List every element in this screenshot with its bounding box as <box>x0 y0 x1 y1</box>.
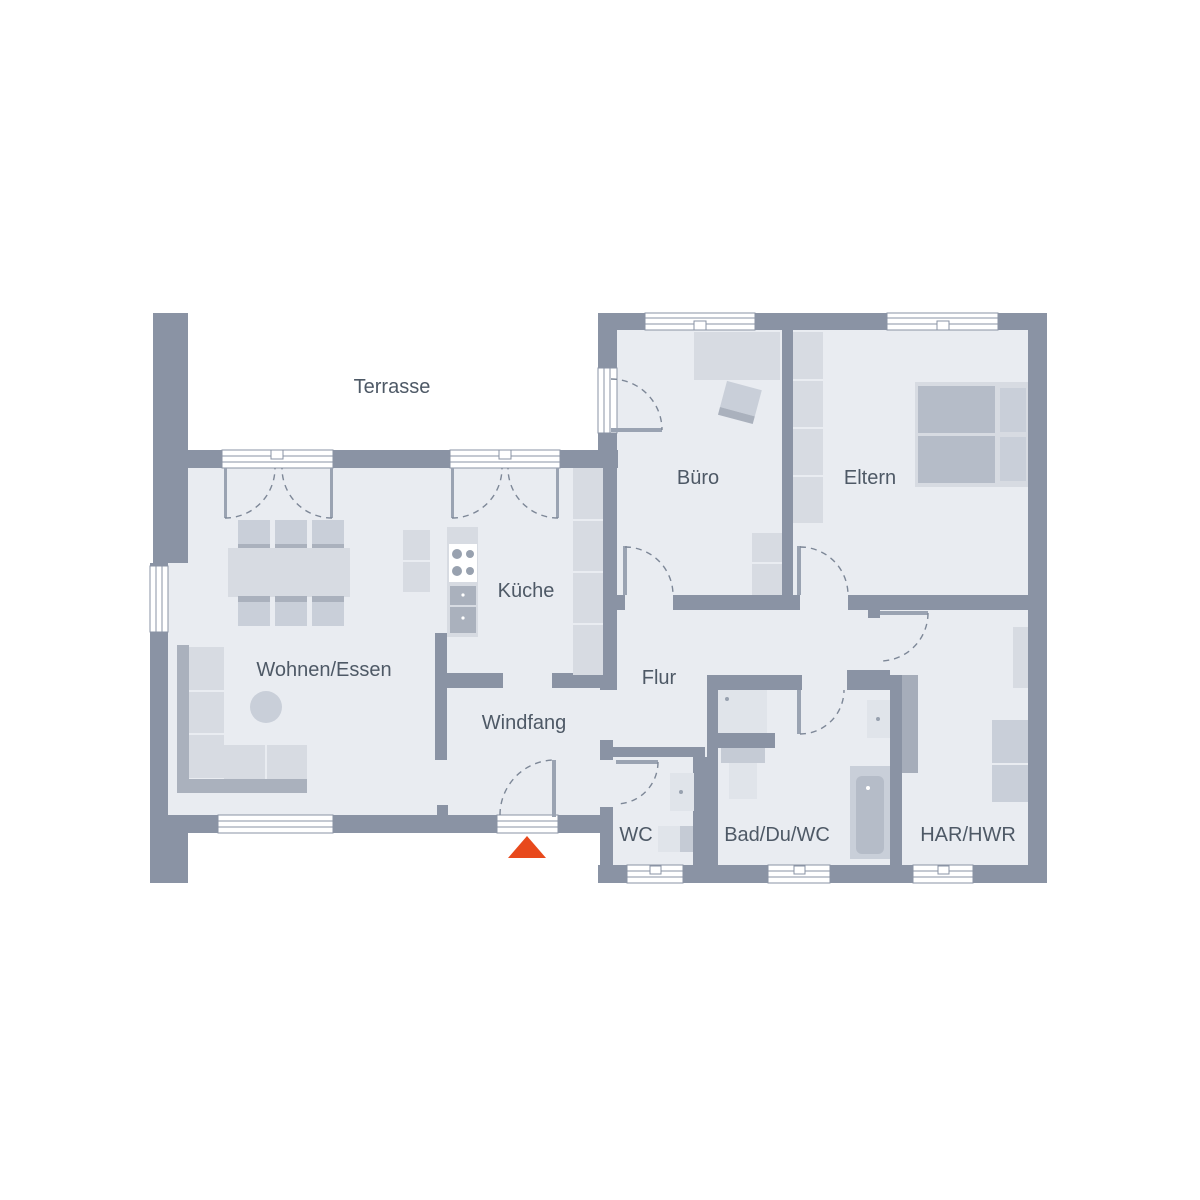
window-handle-icon <box>650 866 661 874</box>
mattress <box>918 386 995 433</box>
double-bed <box>915 382 1028 487</box>
wc-west-wall-lower <box>600 807 613 865</box>
dining-chair <box>275 520 307 544</box>
wc-west-wall-upper <box>600 740 613 760</box>
kitchen-south-wall-a <box>447 673 503 688</box>
utility-cabinet <box>1013 627 1028 688</box>
window-handle-icon <box>499 450 511 459</box>
dryer-icon <box>992 765 1028 802</box>
bathtub-icon <box>850 766 890 859</box>
hall-wall-stub-a <box>617 595 625 610</box>
entrance-marker-icon <box>508 836 546 858</box>
vestibule-living-wall <box>435 633 447 760</box>
kitchen-south-wall-b <box>552 673 605 688</box>
room-label-bad-du-wc: Bad/Du/WC <box>724 824 830 846</box>
bedroom-north-window <box>887 313 998 330</box>
wc-south-window <box>627 865 683 883</box>
coffee-table <box>250 691 282 723</box>
door-leaf <box>556 468 559 518</box>
washer-icon <box>992 720 1028 763</box>
east-wall <box>1028 313 1047 883</box>
hall-north-wall-c <box>848 595 1028 610</box>
door-leaf <box>330 468 333 518</box>
room-label-buero: Büro <box>677 467 719 489</box>
room-label-wohnen-essen: Wohnen/Essen <box>256 659 391 681</box>
shower-partition <box>707 733 775 748</box>
door-leaf <box>623 546 627 595</box>
room-label-wc: WC <box>619 824 652 846</box>
room-label-terrasse: Terrasse <box>354 376 431 398</box>
office-north-window <box>645 313 755 330</box>
dining-table <box>228 548 350 597</box>
door-leaf <box>611 428 662 432</box>
door-leaf <box>880 611 928 615</box>
duct-block <box>902 675 918 773</box>
window-handle-icon <box>938 866 949 874</box>
bath-utility-wall <box>890 675 902 865</box>
pillow <box>1000 388 1026 432</box>
dining-chair <box>312 602 344 626</box>
pillow <box>1000 437 1026 481</box>
shower-icon <box>718 690 767 733</box>
office-bedroom-wall <box>782 330 793 595</box>
door-leaf <box>797 690 801 734</box>
floor-plan: Terrasse Büro Eltern Küche Wohnen/Essen … <box>0 0 1200 1200</box>
wc-bath-wall <box>693 757 707 865</box>
room-label-har-hwr: HAR/HWR <box>920 824 1016 846</box>
hall-north-wall-b <box>673 595 800 610</box>
living-south-window <box>218 815 333 833</box>
window-handle-icon <box>271 450 283 459</box>
room-label-windfang: Windfang <box>482 712 567 734</box>
desk <box>694 332 780 380</box>
vestibule-wall-stub <box>437 805 448 817</box>
dining-set <box>228 520 350 626</box>
door-leaf <box>224 468 227 518</box>
window-handle-icon <box>937 321 949 330</box>
toilet-icon <box>721 748 765 763</box>
bath-north-wall-b <box>847 670 890 690</box>
door-leaf <box>552 760 556 817</box>
living-west-window <box>150 566 168 632</box>
mattress <box>918 436 995 483</box>
terrace-side-wall <box>153 313 188 563</box>
kitchen-sink-icon <box>450 607 476 633</box>
window-handle-icon <box>694 321 706 330</box>
stove-icon <box>449 544 477 582</box>
door-leaf <box>616 760 658 764</box>
utility-door-pier <box>868 610 880 618</box>
bath-west-wall <box>707 675 718 865</box>
room-label-flur: Flur <box>642 667 677 689</box>
utility-south-window <box>913 865 973 883</box>
bath-north-wall-a <box>707 675 802 690</box>
dining-chair <box>312 520 344 544</box>
bath-south-window <box>768 865 830 883</box>
window-handle-icon <box>794 866 805 874</box>
dining-chair <box>275 602 307 626</box>
dining-chair <box>238 602 270 626</box>
room-label-kueche: Küche <box>498 580 555 602</box>
wc-north-wall <box>613 747 705 757</box>
floor-plan-page: Terrasse Büro Eltern Küche Wohnen/Essen … <box>0 0 1200 1200</box>
door-leaf <box>797 546 801 595</box>
toilet-icon <box>658 826 680 852</box>
dining-chair <box>238 520 270 544</box>
door-leaf <box>451 468 454 518</box>
room-label-eltern: Eltern <box>844 467 896 489</box>
